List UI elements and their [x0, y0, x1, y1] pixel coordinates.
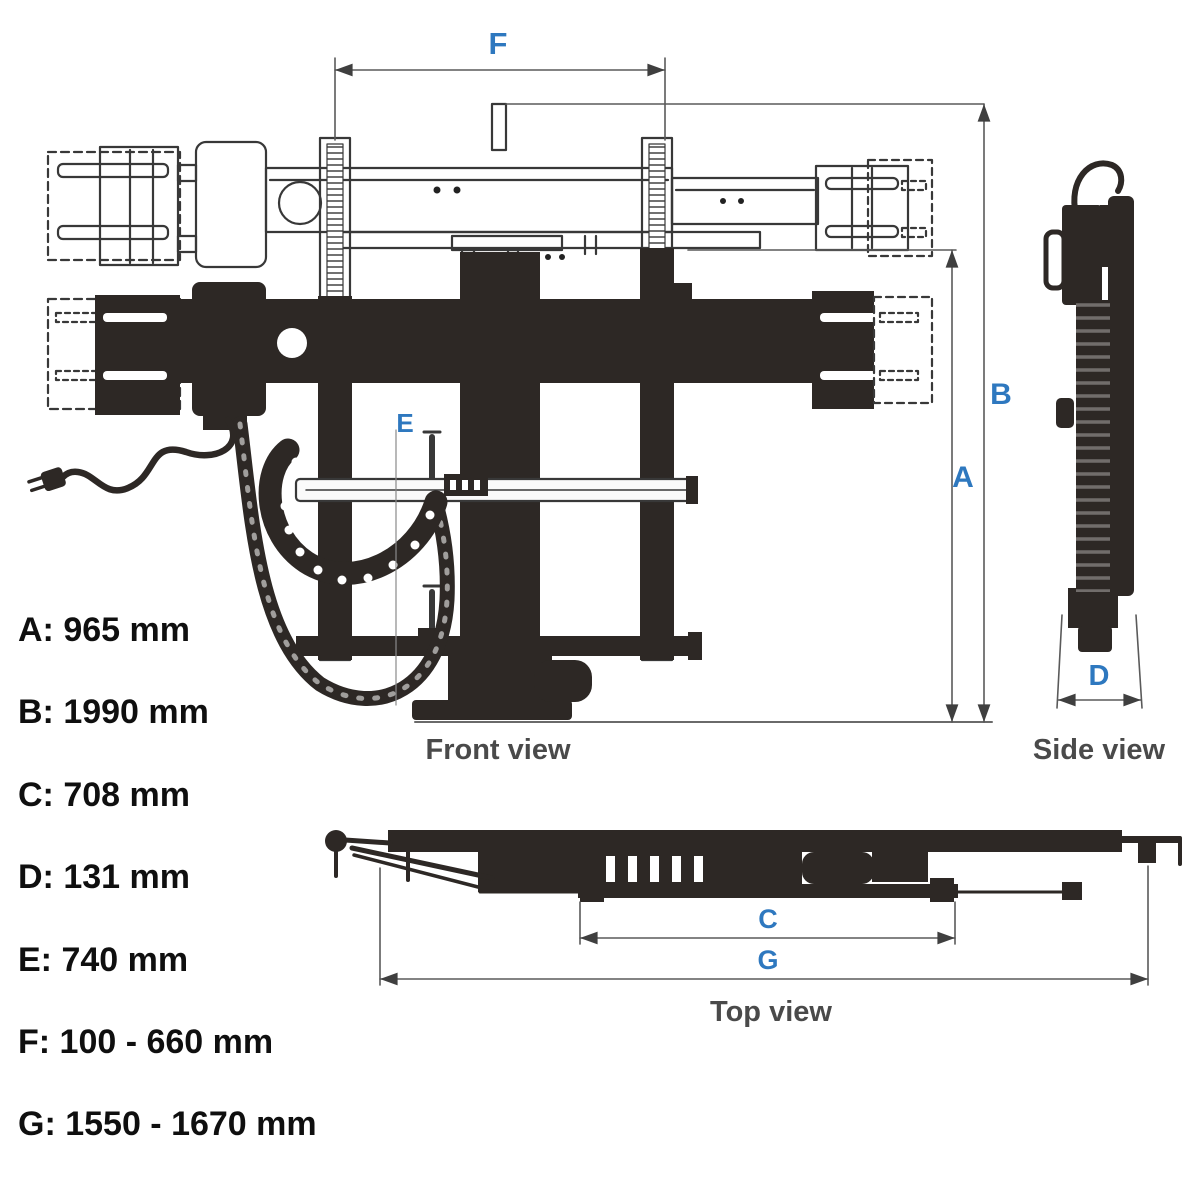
dimension-B [506, 104, 984, 722]
top-center-post [492, 104, 506, 150]
upper-left-tv-bracket [48, 147, 196, 265]
upper-gearbox-housing [196, 142, 266, 267]
top-view-label: Top view [661, 998, 881, 1027]
energy-chain-arc [270, 450, 436, 573]
side-view-label: Side view [989, 736, 1200, 765]
dim-letter-F: F [476, 28, 520, 59]
motor-capsule [534, 660, 592, 702]
dim-letter-G: G [746, 947, 790, 974]
upper-right-tv-bracket [816, 160, 932, 256]
beam-hole [277, 328, 307, 358]
lower-right-tv-bracket [812, 291, 932, 409]
dim-letter-D: D [1077, 662, 1121, 691]
upper-main-beam [266, 168, 818, 232]
front-upper-outline-assembly [48, 104, 932, 274]
measurement-C: C: 708 mm [18, 777, 190, 817]
power-plug-icon [27, 466, 66, 496]
side-handle [1046, 232, 1064, 288]
measurement-D: D: 131 mm [18, 859, 190, 899]
measurement-A: A: 965 mm [18, 612, 190, 652]
dim-letter-C: C [746, 906, 790, 933]
lower-left-tv-bracket [48, 295, 180, 415]
side-view [1046, 163, 1142, 708]
upper-rail-band [340, 232, 760, 274]
measurement-G: G: 1550 - 1670 mm [18, 1106, 317, 1146]
dim-letter-A: A [941, 463, 985, 493]
measurement-B: B: 1990 mm [18, 694, 209, 734]
cable-management [27, 420, 447, 699]
measurement-E: E: 740 mm [18, 942, 188, 982]
technical-drawing-page: F B A E D C G Front view Side view Top v… [0, 0, 1200, 1200]
dim-letter-E: E [383, 410, 427, 436]
power-cord [63, 420, 233, 490]
front-view-label: Front view [388, 736, 608, 765]
tv-lift-drawing [0, 0, 1200, 1200]
side-column-ribs [1076, 302, 1110, 592]
measurement-F: F: 100 - 660 mm [18, 1024, 273, 1064]
dimension-F [335, 58, 665, 140]
dim-letter-B: B [979, 380, 1023, 410]
